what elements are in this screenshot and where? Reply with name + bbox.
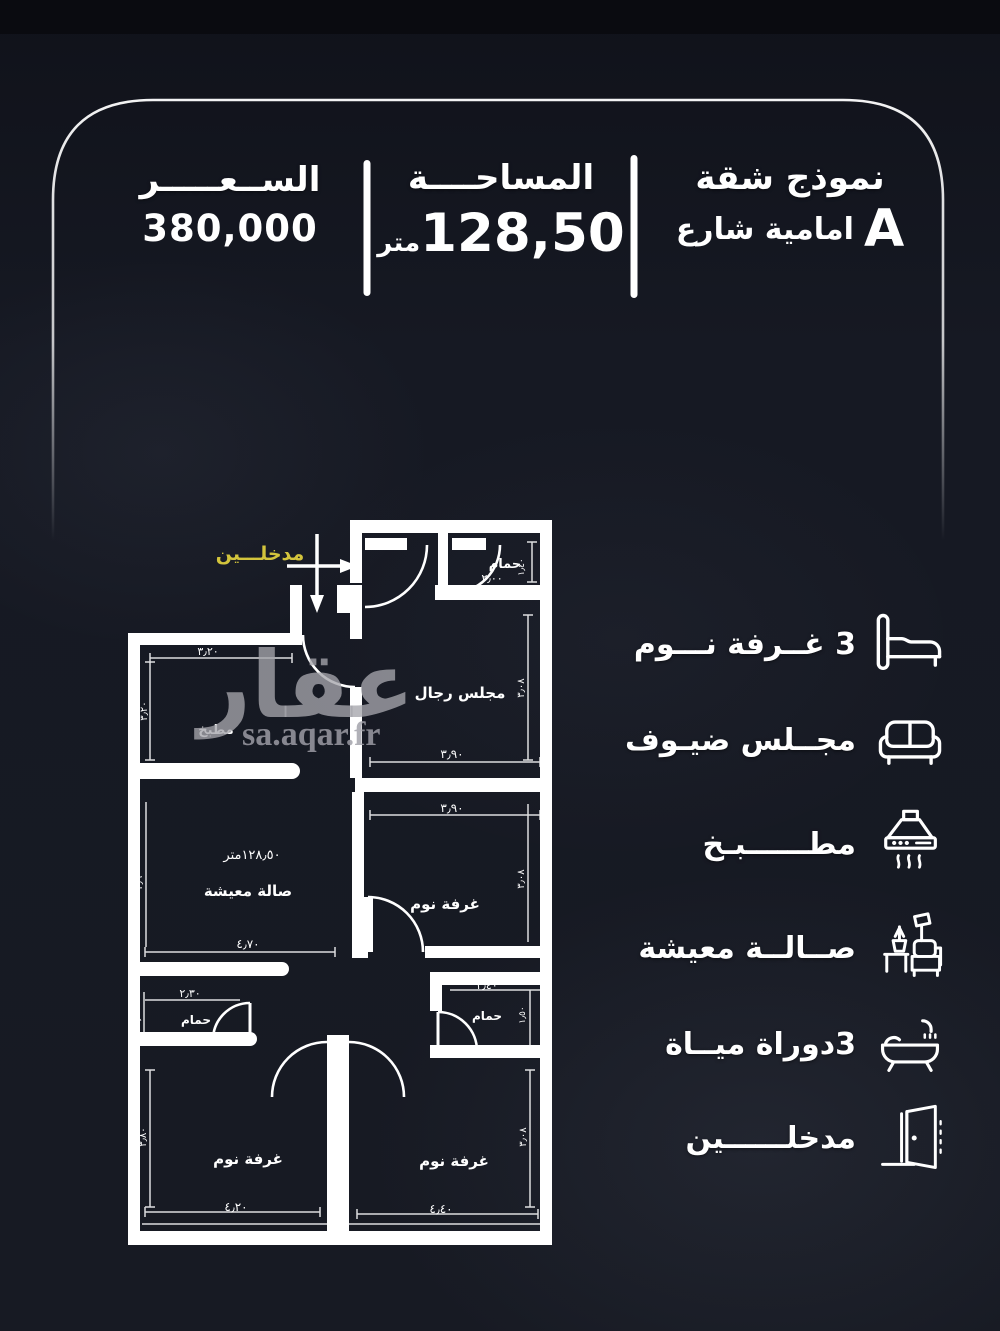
kitchen-hood-icon bbox=[872, 806, 948, 882]
bed-icon bbox=[872, 606, 948, 682]
feature-label: 3دوراة ميــاة bbox=[665, 1027, 856, 1062]
room-label-majlis: مجلس رجال bbox=[415, 684, 506, 702]
dim-bath-left-w: ٢٫٣٠ bbox=[179, 987, 200, 1000]
feature-label: مجــلس ضيـوف bbox=[625, 723, 856, 758]
feature-living-room: صــالــة معيشة bbox=[618, 908, 948, 988]
area-label: المساحــــة bbox=[372, 160, 630, 197]
area-block: المساحــــة 128,50متر bbox=[372, 160, 630, 264]
feature-label: مدخلــــــين bbox=[685, 1121, 856, 1156]
dim-bed-br-h: ٣٫٠٨ bbox=[518, 1127, 529, 1147]
feature-bathrooms: 3دوراة ميــاة bbox=[618, 1004, 948, 1084]
dim-majlis-w: ٣٫٩٠ bbox=[440, 747, 463, 761]
header-divider-right bbox=[631, 155, 638, 298]
model-subtitle: امامية شارع bbox=[676, 212, 854, 247]
feature-bedrooms: 3 غــرفة نـــوم bbox=[618, 604, 948, 684]
feature-label: 3 غــرفة نـــوم bbox=[634, 627, 856, 662]
feature-kitchen: مطــــــبـخ bbox=[618, 804, 948, 884]
dim-majlis-h: ٣٫٠٨ bbox=[516, 678, 527, 698]
door-icon bbox=[872, 1100, 948, 1176]
feature-label: مطــــــبـخ bbox=[703, 827, 856, 862]
dim-bed-mid-w: ٣٫٩٠ bbox=[440, 801, 463, 815]
dim-bath-top-w: ٢٫٠٠ bbox=[481, 572, 502, 585]
dim-bed-bl-h: ٣٫٨٠ bbox=[138, 1127, 149, 1146]
room-label-bath-left: حمام bbox=[181, 1013, 211, 1028]
area-unit: متر bbox=[377, 228, 420, 258]
watermark-site: sa.aqar.fr bbox=[242, 716, 381, 754]
model-label: نموذج شقة bbox=[645, 160, 935, 197]
dim-kitchen-h: ٣٫٢٠ bbox=[139, 701, 150, 720]
dim-bath-top-h: ١٫٤٠ bbox=[517, 558, 527, 575]
bathtub-icon bbox=[872, 1006, 948, 1082]
model-block: نموذج شقة A امامية شارع bbox=[645, 160, 935, 255]
entrance-label: مدخلـــين bbox=[216, 543, 305, 565]
plan-walls bbox=[128, 520, 552, 1245]
dim-bath-right-w: ٢٫٤٠ bbox=[476, 979, 497, 992]
dim-bed-mid-h: ٣٫٠٨ bbox=[516, 869, 527, 889]
price-value: 380,000 bbox=[95, 207, 365, 250]
room-label-living: صالة معيشة bbox=[204, 882, 292, 900]
area-value: 128,50 bbox=[420, 203, 625, 264]
living-area-value: ١٢٨٫٥٠متر bbox=[222, 848, 280, 863]
feature-guest-majlis: مجــلس ضيـوف bbox=[618, 700, 948, 780]
floor-plan: حمام ٢٫٠٠ ١٫٤٠ مجلس رجال ٣٫٩٠ ٣٫٠٨ ٣٫٢٠ … bbox=[120, 512, 570, 1252]
living-room-icon bbox=[872, 910, 948, 986]
price-label: الســعـــــر bbox=[95, 162, 365, 199]
dim-living-w: ٤٫٧٠ bbox=[236, 937, 259, 951]
price-block: الســعـــــر 380,000 bbox=[95, 162, 365, 250]
room-label-bed-mid: غرفة نوم bbox=[410, 895, 480, 913]
room-label-bath-right: حمام bbox=[472, 1009, 502, 1024]
sofa-icon bbox=[872, 702, 948, 778]
dim-living-h: ٣٫٦٠ bbox=[134, 870, 145, 889]
dim-bath-right-h: ١٫٥٠ bbox=[518, 1006, 528, 1023]
dim-bed-br-w: ٤٫٤٠ bbox=[429, 1202, 452, 1216]
room-label-bed-bl: غرفة نوم bbox=[213, 1150, 283, 1168]
model-letter: A bbox=[864, 203, 904, 255]
dim-bed-bl-w: ٤٫٢٠ bbox=[224, 1200, 247, 1214]
room-label-bed-br: غرفة نوم bbox=[419, 1152, 489, 1170]
dim-bath-left-h: ١٫٣٠ bbox=[133, 1008, 143, 1025]
feature-entrances: مدخلــــــين bbox=[618, 1098, 948, 1178]
feature-label: صــالــة معيشة bbox=[638, 931, 856, 966]
